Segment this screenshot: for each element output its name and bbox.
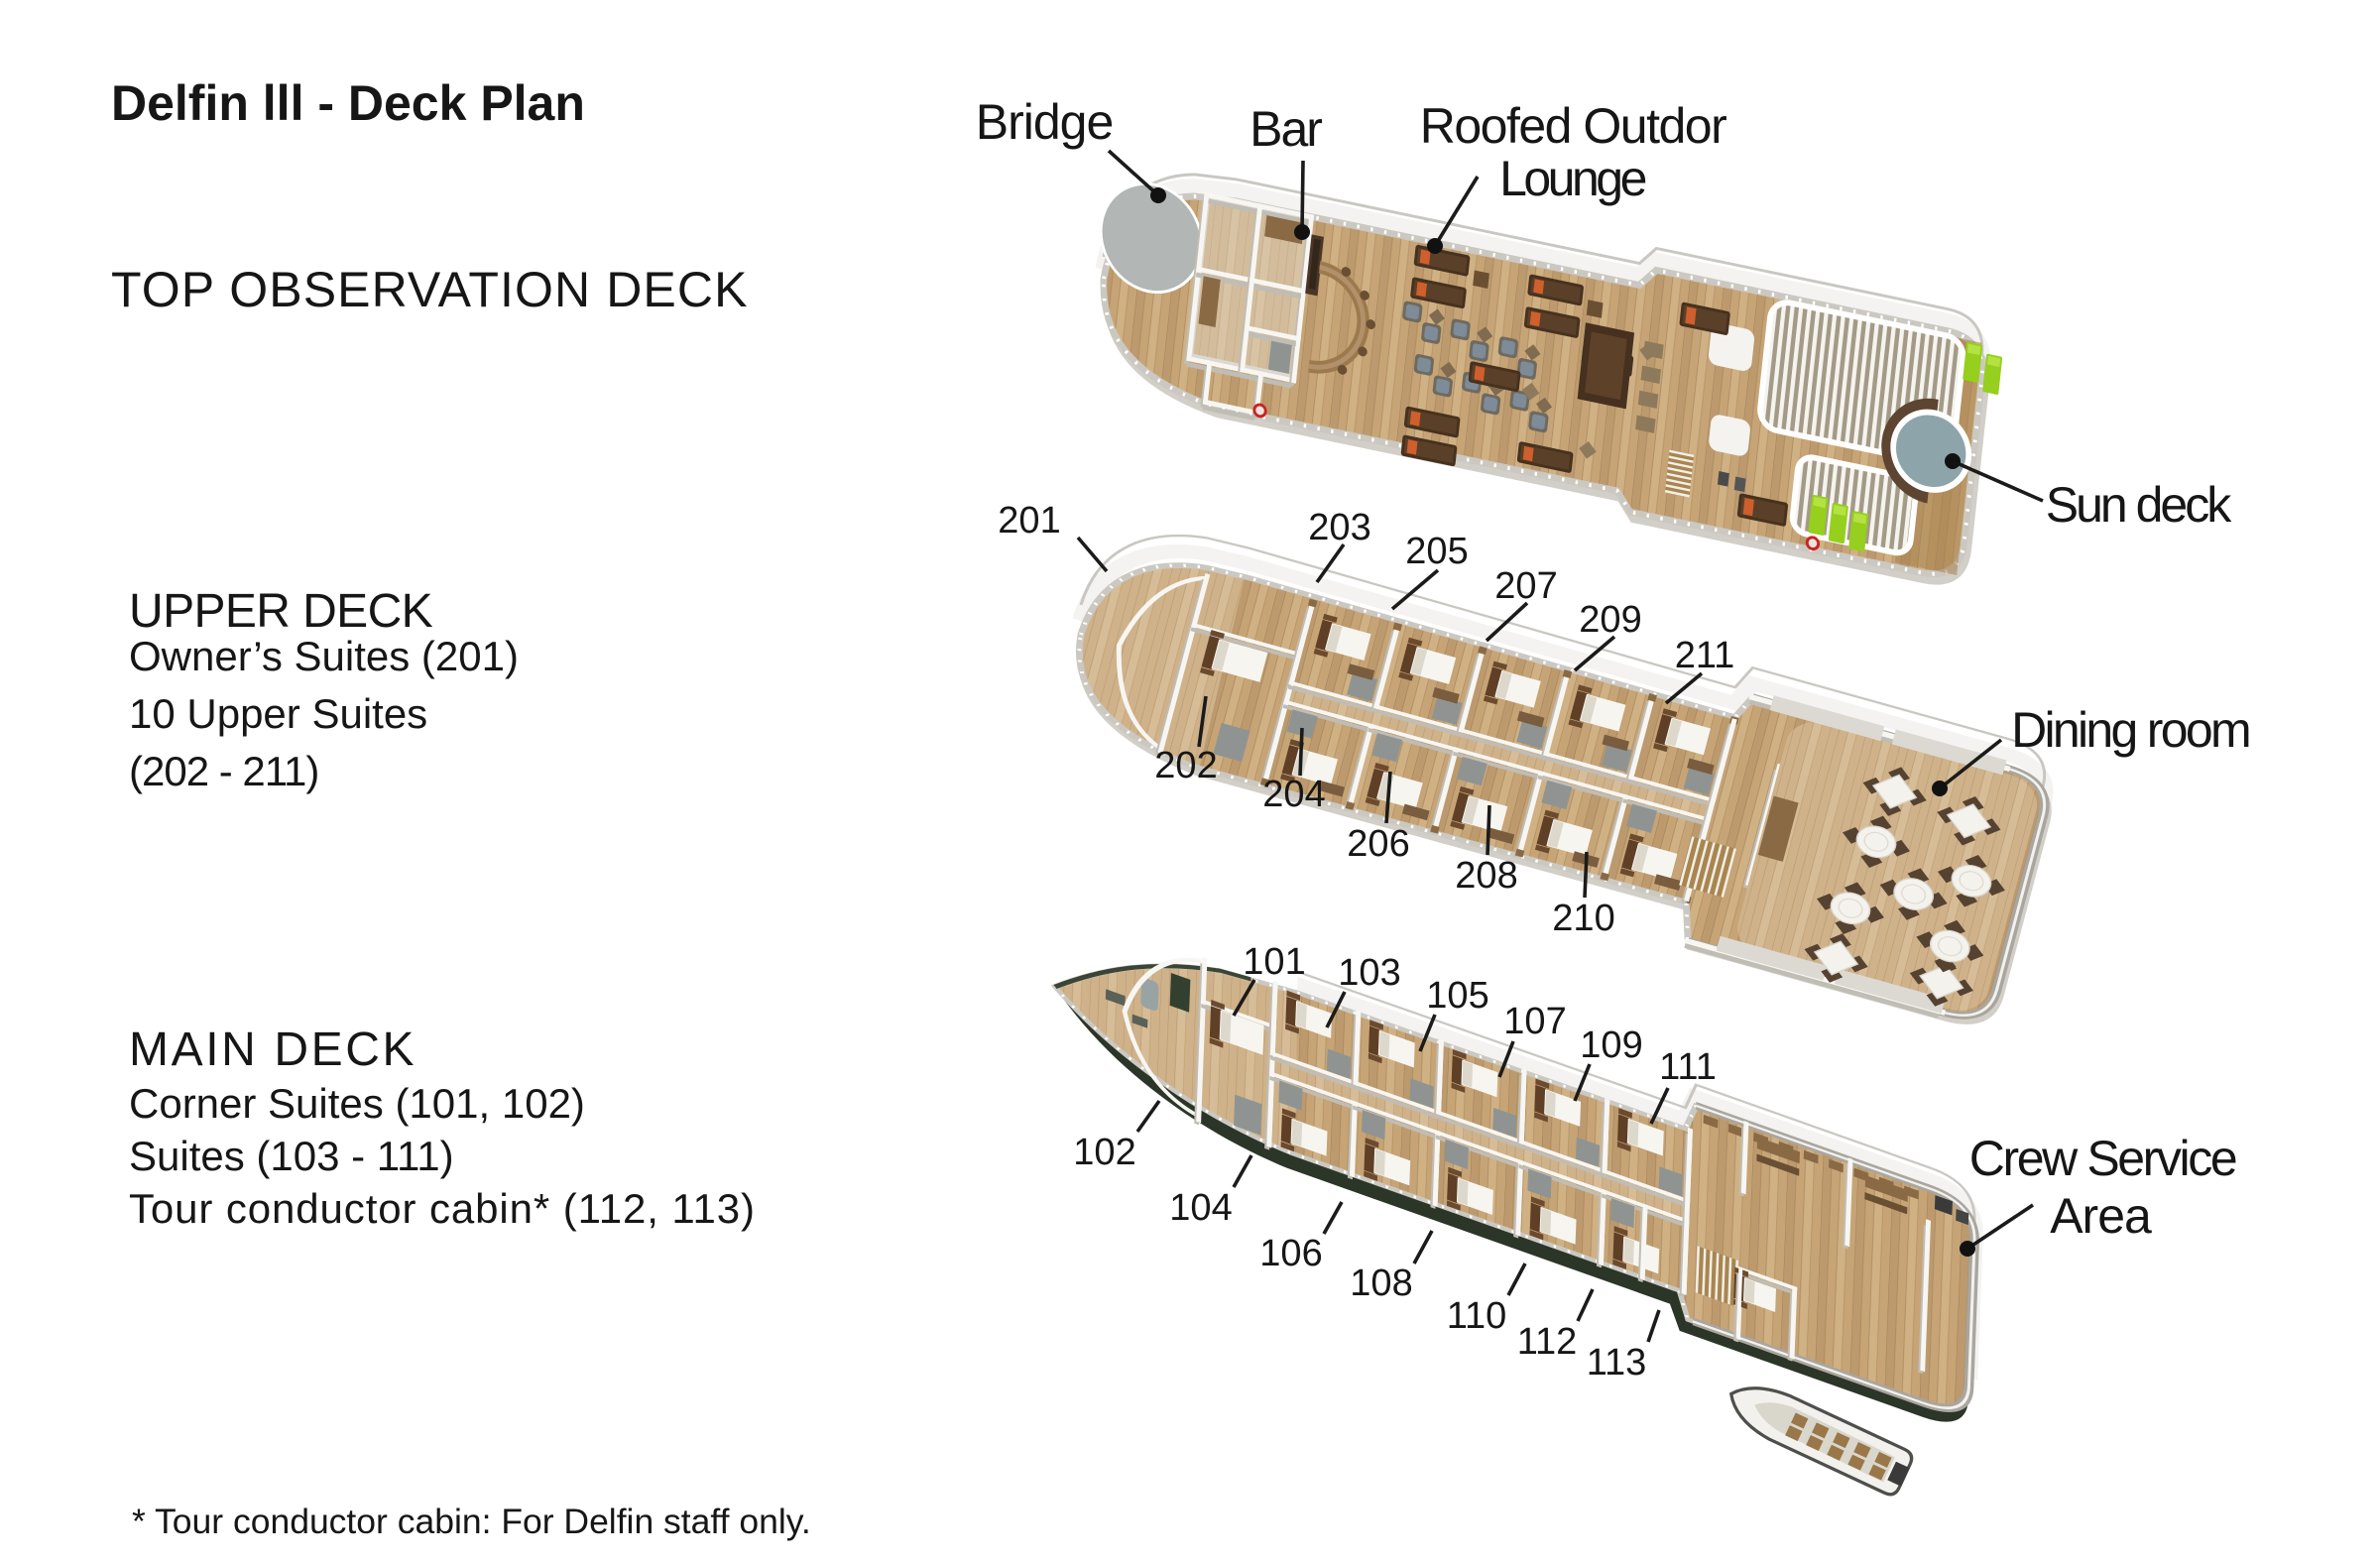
svg-text:10 Upper Suites: 10 Upper Suites bbox=[129, 690, 427, 737]
svg-text:202: 202 bbox=[1154, 745, 1217, 786]
svg-text:Bar: Bar bbox=[1249, 101, 1322, 157]
svg-text:Dining room: Dining room bbox=[2011, 702, 2249, 758]
svg-text:Bridge: Bridge bbox=[976, 94, 1114, 150]
svg-text:211: 211 bbox=[1675, 635, 1735, 676]
svg-text:* Tour conductor cabin: For De: * Tour conductor cabin: For Delfin staff… bbox=[132, 1502, 811, 1541]
svg-text:204: 204 bbox=[1262, 774, 1325, 815]
svg-text:110: 110 bbox=[1447, 1295, 1507, 1337]
svg-text:108: 108 bbox=[1350, 1263, 1412, 1304]
svg-text:Roofed Outdor: Roofed Outdor bbox=[1420, 98, 1726, 154]
svg-text:Suites (103 - 111): Suites (103 - 111) bbox=[129, 1133, 454, 1179]
svg-text:105: 105 bbox=[1426, 975, 1488, 1017]
svg-text:TOP OBSERVATION DECK: TOP OBSERVATION DECK bbox=[111, 262, 749, 317]
svg-text:107: 107 bbox=[1503, 1001, 1566, 1042]
svg-text:Sun deck: Sun deck bbox=[2046, 477, 2232, 533]
svg-text:Delfin lll - Deck Plan: Delfin lll - Deck Plan bbox=[111, 75, 585, 131]
svg-text:205: 205 bbox=[1405, 531, 1468, 572]
svg-text:106: 106 bbox=[1259, 1233, 1322, 1274]
svg-text:103: 103 bbox=[1338, 952, 1400, 994]
svg-text:201: 201 bbox=[998, 500, 1060, 542]
svg-text:Area: Area bbox=[2050, 1188, 2152, 1244]
svg-text:Owner’s Suites (201): Owner’s Suites (201) bbox=[129, 633, 519, 679]
svg-text:207: 207 bbox=[1494, 565, 1557, 607]
svg-text:MAIN DECK: MAIN DECK bbox=[129, 1023, 416, 1076]
svg-text:203: 203 bbox=[1308, 507, 1370, 548]
svg-text:Crew Service: Crew Service bbox=[1969, 1131, 2236, 1186]
svg-text:(202 - 211): (202 - 211) bbox=[129, 748, 318, 794]
svg-text:101: 101 bbox=[1243, 941, 1305, 983]
svg-text:Lounge: Lounge bbox=[1499, 151, 1646, 206]
svg-text:104: 104 bbox=[1169, 1187, 1232, 1229]
svg-text:208: 208 bbox=[1455, 855, 1517, 897]
svg-text:UPPER DECK: UPPER DECK bbox=[129, 585, 433, 638]
svg-text:206: 206 bbox=[1347, 823, 1409, 865]
svg-text:111: 111 bbox=[1659, 1046, 1717, 1088]
svg-text:Tour conductor cabin* (112, 11: Tour conductor cabin* (112, 113) bbox=[129, 1185, 756, 1232]
svg-text:209: 209 bbox=[1579, 599, 1641, 641]
svg-text:113: 113 bbox=[1587, 1342, 1647, 1384]
svg-text:210: 210 bbox=[1552, 898, 1614, 939]
svg-text:102: 102 bbox=[1073, 1132, 1135, 1173]
svg-text:Corner Suites (101, 102): Corner Suites (101, 102) bbox=[129, 1080, 585, 1127]
svg-text:112: 112 bbox=[1517, 1321, 1578, 1363]
svg-text:109: 109 bbox=[1580, 1024, 1642, 1066]
